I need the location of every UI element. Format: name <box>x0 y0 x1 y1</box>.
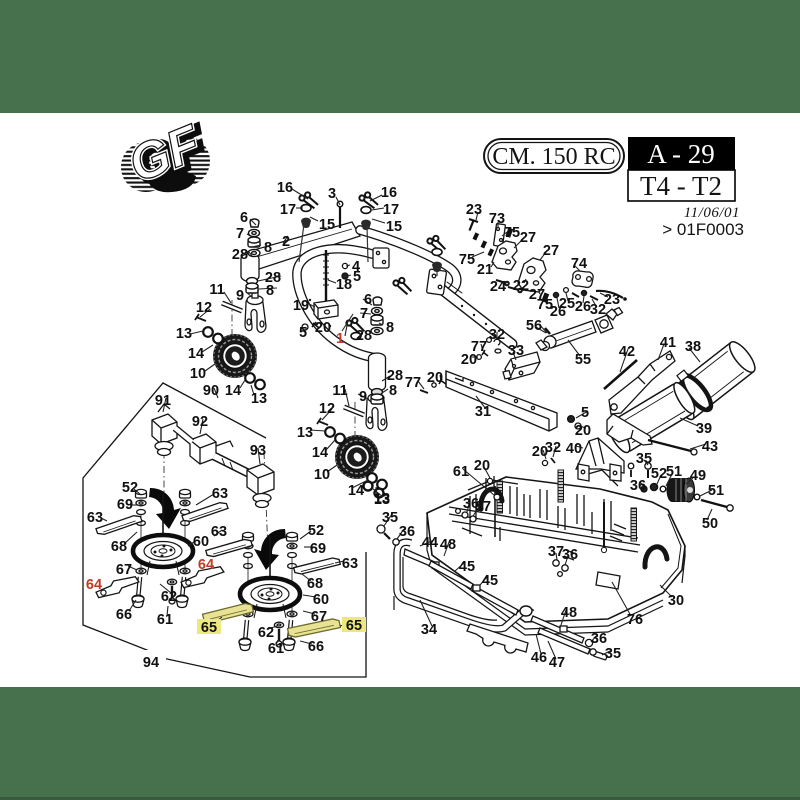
svg-text:92: 92 <box>192 414 208 430</box>
svg-text:68: 68 <box>307 576 323 592</box>
svg-text:6: 6 <box>240 210 248 226</box>
svg-text:5: 5 <box>353 269 361 285</box>
svg-text:33: 33 <box>508 343 524 359</box>
svg-text:10: 10 <box>314 467 330 483</box>
svg-text:15: 15 <box>386 219 402 235</box>
svg-text:9: 9 <box>236 288 244 304</box>
svg-text:28: 28 <box>356 328 372 344</box>
svg-text:37: 37 <box>475 499 491 515</box>
svg-text:20: 20 <box>532 444 548 460</box>
svg-text:74: 74 <box>571 256 587 272</box>
svg-text:73: 73 <box>489 211 505 227</box>
svg-text:50: 50 <box>702 516 718 532</box>
svg-text:CM. 150 RC: CM. 150 RC <box>492 144 615 170</box>
svg-text:36: 36 <box>630 478 646 494</box>
svg-text:36: 36 <box>562 547 578 563</box>
svg-text:28: 28 <box>232 247 248 263</box>
svg-text:43: 43 <box>702 439 718 455</box>
svg-text:51: 51 <box>708 483 724 499</box>
svg-text:8: 8 <box>386 320 394 336</box>
svg-text:93: 93 <box>250 443 266 459</box>
svg-text:56: 56 <box>526 318 542 334</box>
svg-text:52: 52 <box>651 466 667 482</box>
svg-text:60: 60 <box>313 592 329 608</box>
svg-text:14: 14 <box>225 383 241 399</box>
svg-text:15: 15 <box>319 217 335 233</box>
svg-text:A - 29: A - 29 <box>647 139 715 169</box>
svg-text:20: 20 <box>575 423 591 439</box>
svg-text:11/06/01: 11/06/01 <box>684 205 740 221</box>
svg-text:38: 38 <box>685 339 701 355</box>
svg-text:64: 64 <box>198 557 214 573</box>
svg-text:76: 76 <box>627 612 643 628</box>
svg-text:10: 10 <box>190 366 206 382</box>
svg-text:66: 66 <box>308 639 324 655</box>
svg-text:3: 3 <box>328 186 336 202</box>
svg-text:8: 8 <box>389 383 397 399</box>
svg-text:90: 90 <box>203 383 219 399</box>
svg-text:18: 18 <box>336 277 352 293</box>
svg-text:65: 65 <box>201 620 217 636</box>
svg-text:> 01F0003: > 01F0003 <box>662 220 744 239</box>
svg-text:14: 14 <box>188 346 204 362</box>
svg-text:39: 39 <box>696 421 712 437</box>
svg-text:11: 11 <box>209 282 224 298</box>
svg-text:22: 22 <box>513 278 529 294</box>
svg-text:35: 35 <box>636 451 652 467</box>
svg-text:5: 5 <box>299 325 307 341</box>
svg-text:75: 75 <box>504 225 520 241</box>
svg-text:47: 47 <box>549 655 565 671</box>
svg-text:55: 55 <box>575 352 591 368</box>
svg-text:25: 25 <box>559 296 575 312</box>
svg-text:36: 36 <box>399 524 415 540</box>
svg-text:17: 17 <box>383 202 399 218</box>
svg-text:44: 44 <box>422 535 438 551</box>
svg-text:20: 20 <box>474 458 490 474</box>
svg-text:61: 61 <box>157 612 173 628</box>
svg-text:69: 69 <box>310 541 326 557</box>
svg-text:45: 45 <box>482 573 498 589</box>
svg-text:8: 8 <box>266 283 274 299</box>
svg-text:21: 21 <box>477 262 493 278</box>
svg-text:41: 41 <box>660 335 676 351</box>
svg-text:35: 35 <box>382 510 398 526</box>
svg-text:27: 27 <box>520 230 536 246</box>
svg-text:20: 20 <box>315 320 331 336</box>
svg-text:42: 42 <box>619 344 635 360</box>
svg-text:62: 62 <box>258 625 274 641</box>
svg-text:75: 75 <box>459 252 475 268</box>
svg-text:28: 28 <box>387 368 403 384</box>
svg-text:20: 20 <box>427 370 443 386</box>
svg-text:61: 61 <box>268 641 284 657</box>
svg-text:7: 7 <box>360 306 368 322</box>
svg-text:45: 45 <box>459 559 475 575</box>
svg-text:14: 14 <box>312 445 328 461</box>
svg-text:5: 5 <box>581 405 589 421</box>
svg-text:77: 77 <box>405 375 421 391</box>
svg-text:16: 16 <box>381 185 397 201</box>
svg-text:62: 62 <box>161 589 177 605</box>
svg-text:61: 61 <box>453 464 469 480</box>
svg-text:36: 36 <box>591 631 607 647</box>
svg-text:17: 17 <box>280 202 296 218</box>
svg-text:24: 24 <box>490 279 506 295</box>
svg-text:23: 23 <box>466 202 482 218</box>
svg-text:60: 60 <box>193 534 209 550</box>
svg-text:13: 13 <box>374 492 390 508</box>
svg-text:65: 65 <box>346 618 362 634</box>
svg-text:13: 13 <box>297 425 313 441</box>
svg-text:16: 16 <box>277 180 293 196</box>
svg-text:35: 35 <box>605 646 621 662</box>
svg-text:30: 30 <box>668 593 684 609</box>
svg-text:67: 67 <box>311 609 327 625</box>
svg-text:48: 48 <box>440 537 456 553</box>
svg-text:12: 12 <box>196 300 212 316</box>
svg-text:27: 27 <box>543 243 559 259</box>
svg-text:48: 48 <box>561 605 577 621</box>
svg-text:34: 34 <box>421 622 437 638</box>
svg-text:49: 49 <box>690 468 706 484</box>
svg-text:52: 52 <box>308 523 324 539</box>
svg-text:32: 32 <box>489 327 505 343</box>
svg-text:20: 20 <box>461 352 477 368</box>
svg-text:12: 12 <box>319 401 335 417</box>
svg-text:8: 8 <box>264 240 272 256</box>
svg-text:2: 2 <box>282 234 290 250</box>
svg-text:91: 91 <box>155 393 171 409</box>
svg-text:63: 63 <box>211 524 227 540</box>
svg-text:11: 11 <box>332 383 347 399</box>
svg-text:66: 66 <box>116 607 132 623</box>
svg-text:31: 31 <box>475 404 491 420</box>
svg-text:40: 40 <box>566 441 582 457</box>
svg-text:63: 63 <box>212 486 228 502</box>
svg-text:46: 46 <box>531 650 547 666</box>
svg-text:1: 1 <box>336 331 344 347</box>
svg-text:64: 64 <box>86 577 102 593</box>
svg-text:7: 7 <box>236 226 244 242</box>
svg-text:13: 13 <box>251 391 267 407</box>
svg-text:69: 69 <box>117 497 133 513</box>
svg-text:51: 51 <box>666 464 682 480</box>
svg-text:19: 19 <box>293 298 309 314</box>
svg-text:67: 67 <box>116 562 132 578</box>
svg-text:23: 23 <box>604 292 620 308</box>
svg-text:T4 - T2: T4 - T2 <box>640 171 722 201</box>
svg-text:14: 14 <box>348 483 364 499</box>
svg-text:63: 63 <box>87 510 103 526</box>
svg-text:94: 94 <box>143 655 159 671</box>
svg-text:52: 52 <box>122 480 138 496</box>
svg-text:63: 63 <box>342 556 358 572</box>
svg-text:13: 13 <box>176 326 192 342</box>
svg-text:26: 26 <box>575 299 591 315</box>
svg-text:68: 68 <box>111 539 127 555</box>
svg-text:9: 9 <box>359 389 367 405</box>
